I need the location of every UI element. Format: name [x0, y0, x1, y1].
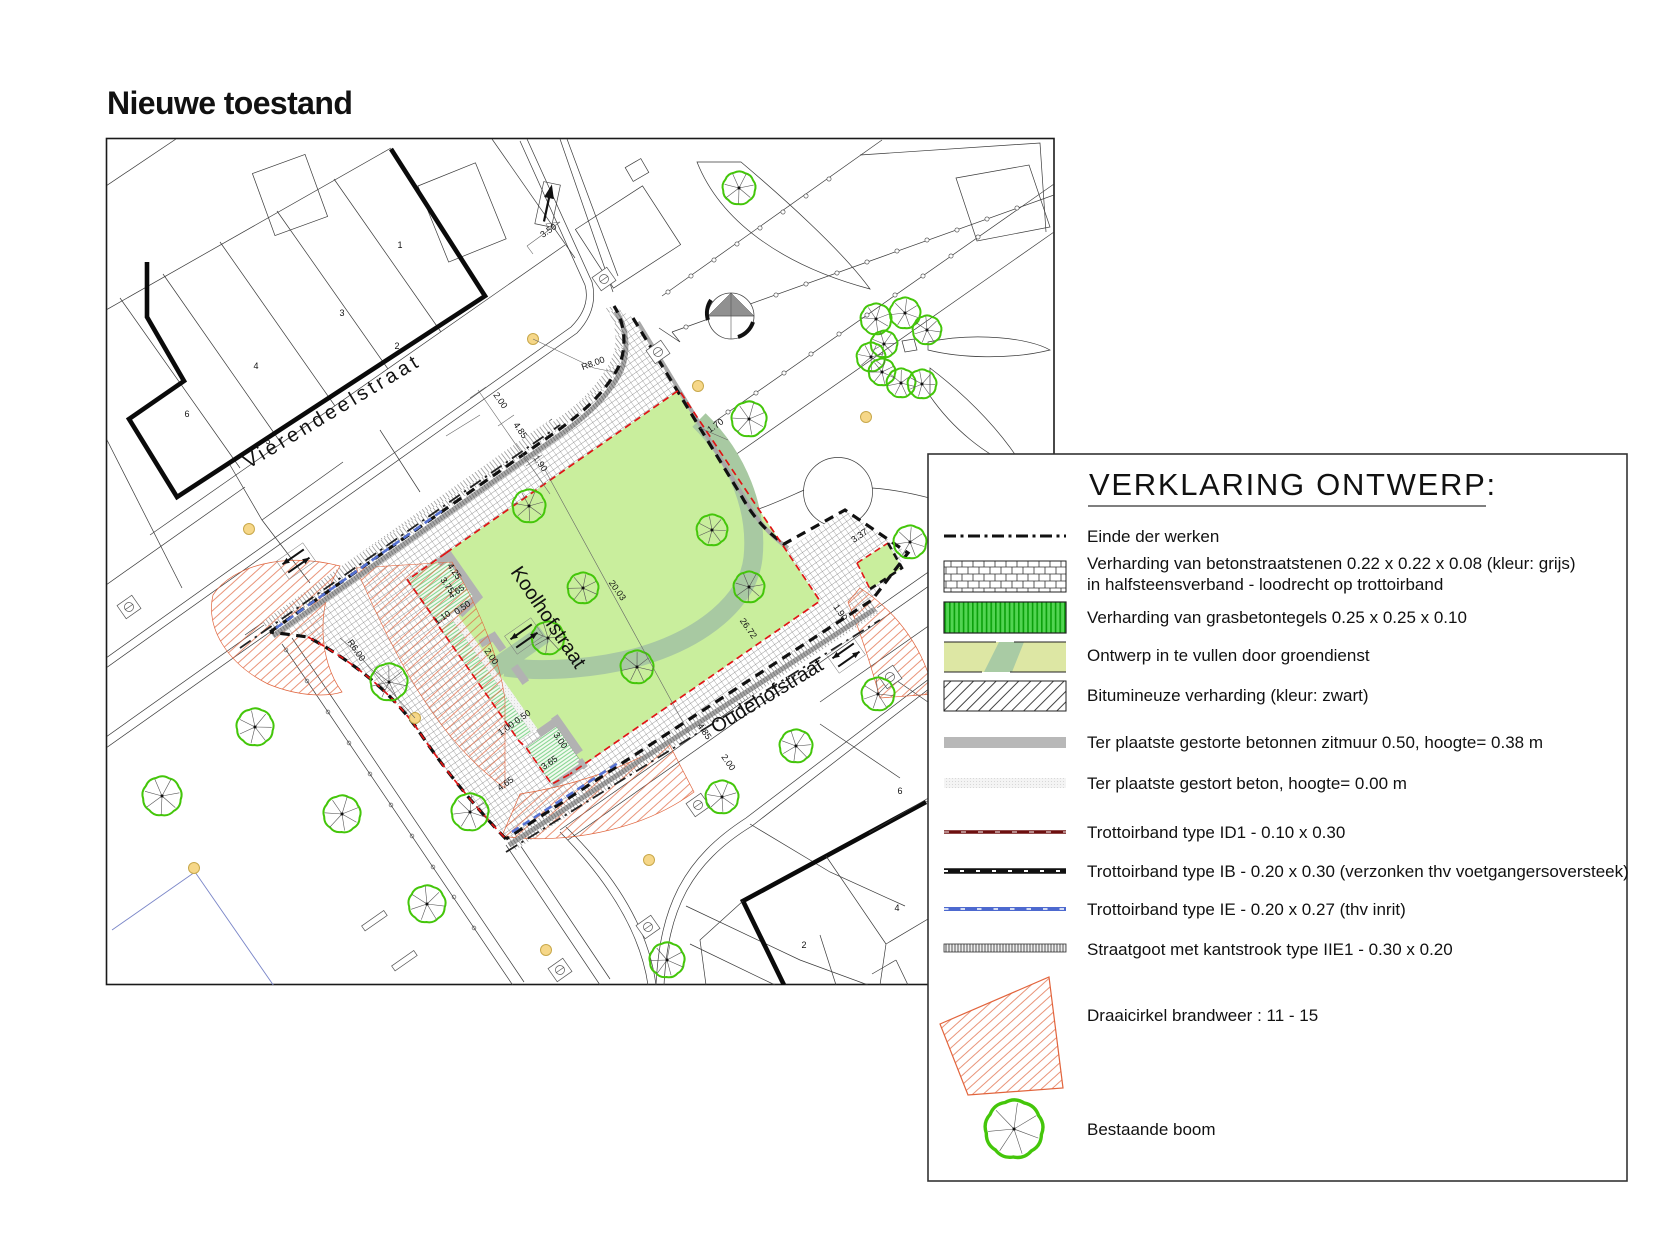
svg-text:4: 4: [253, 361, 258, 371]
svg-text:Verharding van grasbetontegels: Verharding van grasbetontegels 0.25 x 0.…: [1087, 608, 1467, 627]
svg-text:Trottoirband type ID1 - 0.10 x: Trottoirband type ID1 - 0.10 x 0.30: [1087, 823, 1345, 842]
svg-text:6: 6: [184, 409, 189, 419]
svg-text:1: 1: [397, 240, 402, 250]
svg-text:3: 3: [339, 308, 344, 318]
svg-text:Verharding van betonstraatsten: Verharding van betonstraatstenen 0.22 x …: [1087, 554, 1576, 573]
svg-text:2: 2: [801, 940, 806, 950]
svg-text:Ter plaatste gestort beton, ho: Ter plaatste gestort beton, hoogte= 0.00…: [1087, 774, 1407, 793]
svg-text:Einde der werken: Einde der werken: [1087, 527, 1219, 546]
svg-text:4: 4: [894, 903, 899, 913]
svg-text:6: 6: [897, 786, 902, 796]
svg-text:Ter plaatste gestorte betonnen: Ter plaatste gestorte betonnen zitmuur 0…: [1087, 733, 1543, 752]
svg-text:VERKLARING ONTWERP:: VERKLARING ONTWERP:: [1089, 467, 1497, 502]
svg-text:Nieuwe toestand: Nieuwe toestand: [107, 85, 352, 121]
svg-text:in halfsteensverband - loodrec: in halfsteensverband - loodrecht op trot…: [1087, 575, 1443, 594]
svg-text:Bestaande boom: Bestaande boom: [1087, 1120, 1216, 1139]
svg-text:2: 2: [394, 341, 399, 351]
svg-text:Trottoirband type IE - 0.20 x: Trottoirband type IE - 0.20 x 0.27 (thv …: [1087, 900, 1406, 919]
svg-text:Ontwerp in te vullen door groe: Ontwerp in te vullen door groendienst: [1087, 646, 1370, 665]
svg-text:Straatgoot met kantstrook type: Straatgoot met kantstrook type IIE1 - 0.…: [1087, 940, 1453, 959]
svg-text:Trottoirband type IB - 0.20 x: Trottoirband type IB - 0.20 x 0.30 (verz…: [1087, 862, 1629, 881]
svg-text:Draaicirkel brandweer : 11 - 1: Draaicirkel brandweer : 11 - 15: [1087, 1006, 1318, 1025]
svg-text:Bitumineuze verharding (kleur:: Bitumineuze verharding (kleur: zwart): [1087, 686, 1369, 705]
